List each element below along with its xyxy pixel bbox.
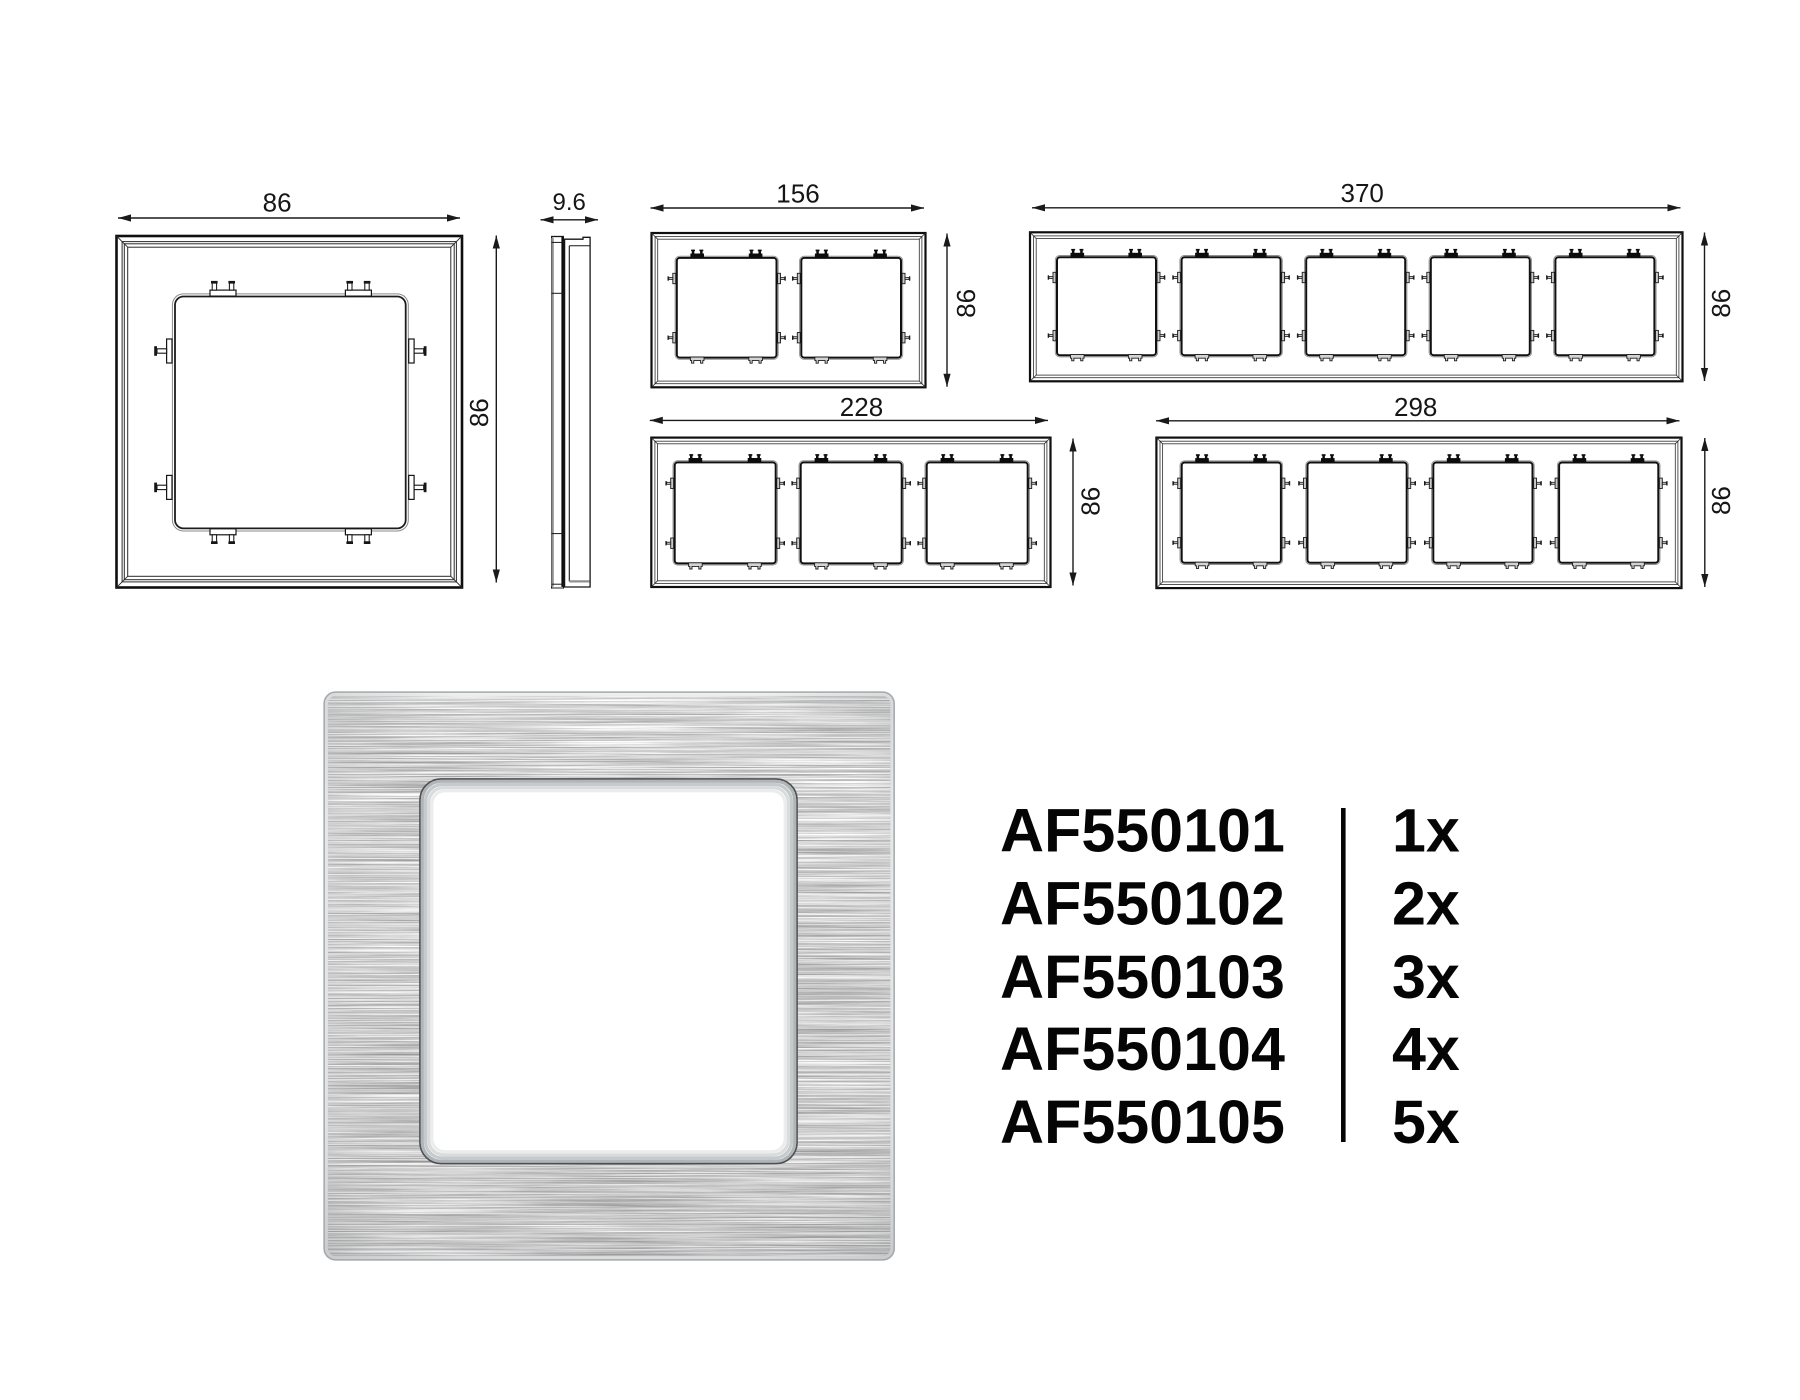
svg-text:86: 86 <box>1706 486 1736 515</box>
svg-text:AF550105: AF550105 <box>1000 1088 1285 1156</box>
svg-text:AF550104: AF550104 <box>1000 1015 1285 1083</box>
svg-text:86: 86 <box>1706 289 1736 318</box>
svg-text:5x: 5x <box>1392 1088 1460 1156</box>
svg-text:86: 86 <box>263 188 292 218</box>
svg-text:298: 298 <box>1394 392 1437 422</box>
svg-text:228: 228 <box>840 392 883 422</box>
svg-text:86: 86 <box>951 289 981 318</box>
svg-text:AF550101: AF550101 <box>1000 797 1285 865</box>
svg-text:1x: 1x <box>1392 797 1460 865</box>
svg-text:2x: 2x <box>1392 870 1460 938</box>
svg-text:3x: 3x <box>1392 943 1460 1011</box>
svg-text:9.6: 9.6 <box>553 189 586 216</box>
svg-text:156: 156 <box>776 179 819 209</box>
svg-text:4x: 4x <box>1392 1015 1460 1083</box>
svg-text:370: 370 <box>1341 178 1384 208</box>
svg-text:86: 86 <box>464 398 494 427</box>
svg-text:AF550103: AF550103 <box>1000 943 1285 1011</box>
svg-text:AF550102: AF550102 <box>1000 870 1285 938</box>
svg-text:86: 86 <box>1075 487 1105 516</box>
